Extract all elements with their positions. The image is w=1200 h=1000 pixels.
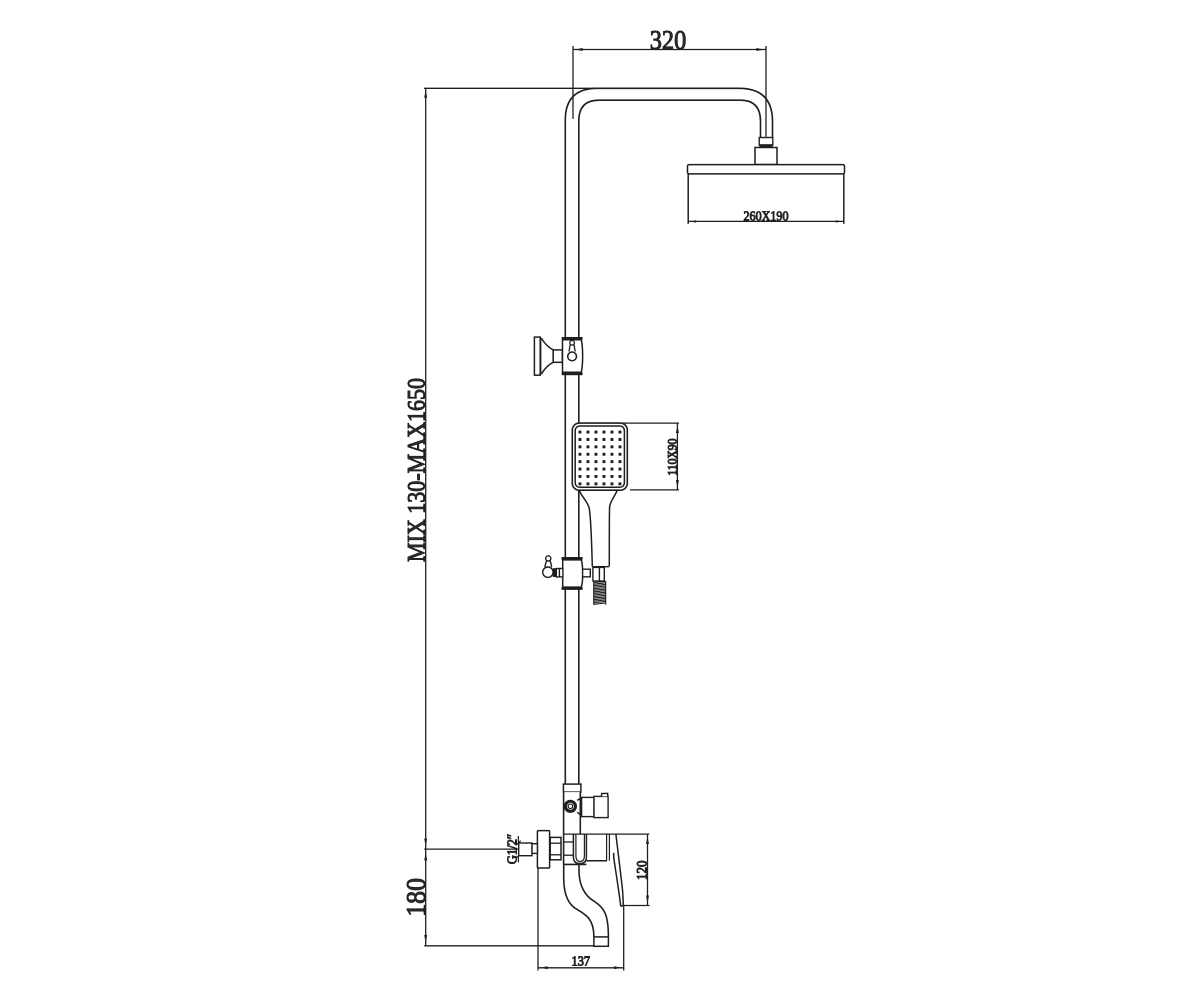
svg-text:320: 320: [650, 24, 687, 55]
svg-text:MIX 130-MAX1650: MIX 130-MAX1650: [403, 378, 430, 562]
svg-text:137: 137: [572, 953, 591, 968]
svg-text:260X190: 260X190: [744, 210, 789, 225]
svg-text:180: 180: [401, 878, 431, 917]
svg-text:110X90: 110X90: [665, 439, 680, 476]
svg-text:120: 120: [634, 861, 650, 881]
